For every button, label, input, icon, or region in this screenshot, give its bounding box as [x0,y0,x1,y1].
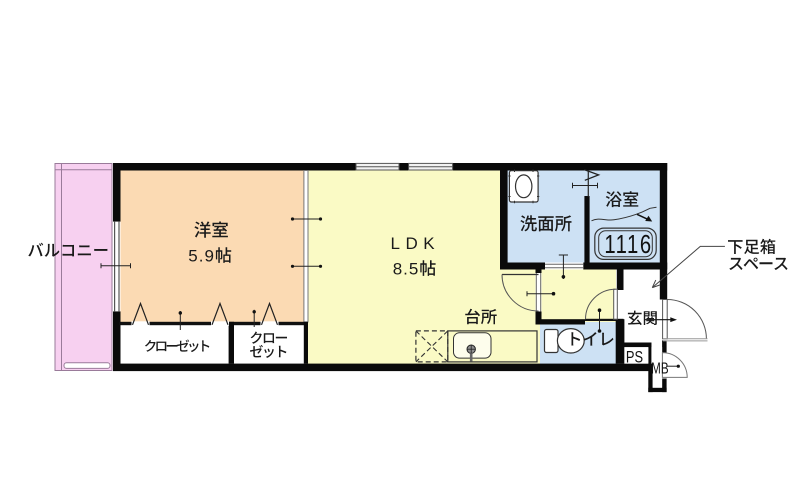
svg-text:5.9: 5.9 [188,247,215,266]
svg-text:PS: PS [626,349,643,367]
svg-text:8.5: 8.5 [393,260,420,279]
svg-text:MB: MB [651,360,668,377]
svg-text:LDK: LDK [391,234,441,253]
svg-text:1116: 1116 [604,230,652,259]
